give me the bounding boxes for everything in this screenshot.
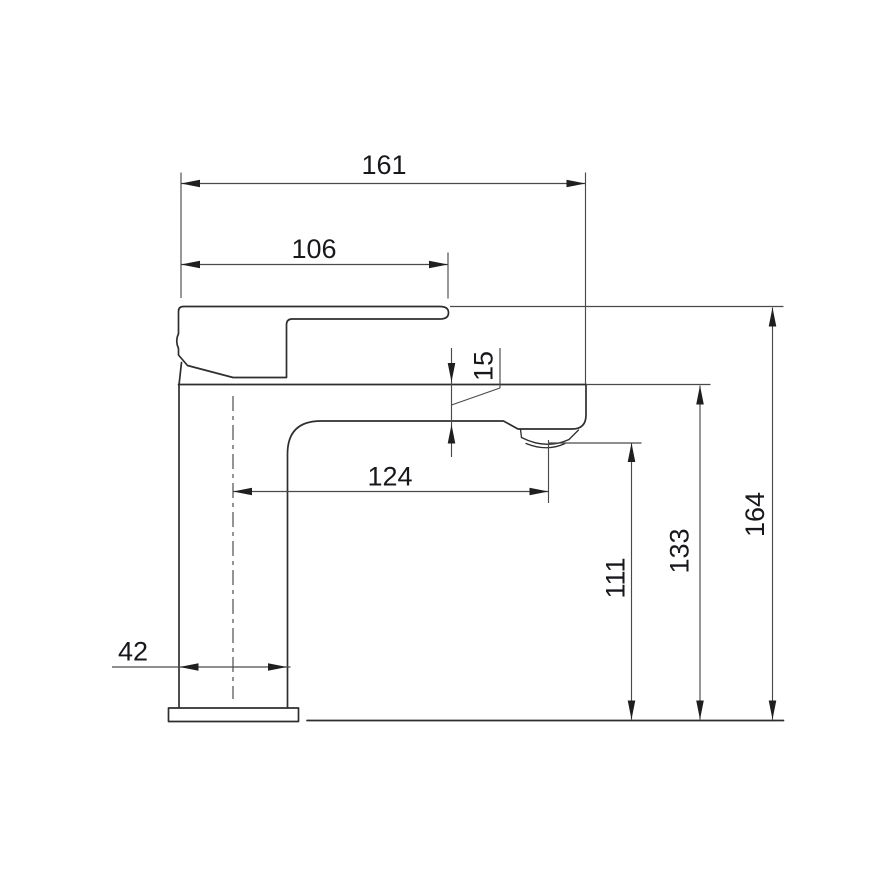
arrowhead [181,180,200,188]
handle-base-left-edge [179,363,182,386]
arrowhead [628,443,636,462]
arrowhead [530,488,549,496]
dimension-spout-thickness: 15 [448,348,500,457]
base-plate [169,708,299,722]
dimension-base-width: 42 [112,637,291,671]
dim-label-spout-thickness: 15 [469,351,499,381]
dim-label-overall-projection: 161 [361,150,406,180]
arrowhead [696,701,704,720]
arrowhead [180,663,199,671]
arrowhead [769,308,777,327]
arrowhead [769,701,777,720]
aerator-outlet [521,430,579,448]
dim-label-handle-projection: 106 [291,234,336,264]
arrowhead [696,386,704,405]
dim-label-outlet-height: 111 [601,557,631,598]
leader-line [452,388,501,405]
dim-label-spout-reach: 124 [367,462,412,492]
dim-label-spout-top-height: 133 [665,528,695,573]
dimension-handle-projection: 106 [181,234,448,299]
arrowhead [628,701,636,720]
arrowhead [448,425,456,444]
faucet-dimension-drawing: 161 106 15 124 [0,0,876,877]
arrowhead [233,488,252,496]
arrowhead [567,180,586,188]
arrowhead [268,663,287,671]
dim-label-overall-height: 164 [740,492,770,537]
dimension-spout-top-height: 133 [586,385,711,720]
technical-drawing-page: 161 106 15 124 [0,0,876,877]
dimension-spout-reach: 124 [233,440,549,503]
arrowhead [429,261,448,269]
arrowhead [181,261,200,269]
spout-and-column-outline [288,385,587,709]
dim-label-base-width: 42 [118,637,148,667]
arrowhead [448,363,456,382]
handle-lever-profile [177,307,449,378]
dimension-outlet-height: 111 [549,443,642,720]
